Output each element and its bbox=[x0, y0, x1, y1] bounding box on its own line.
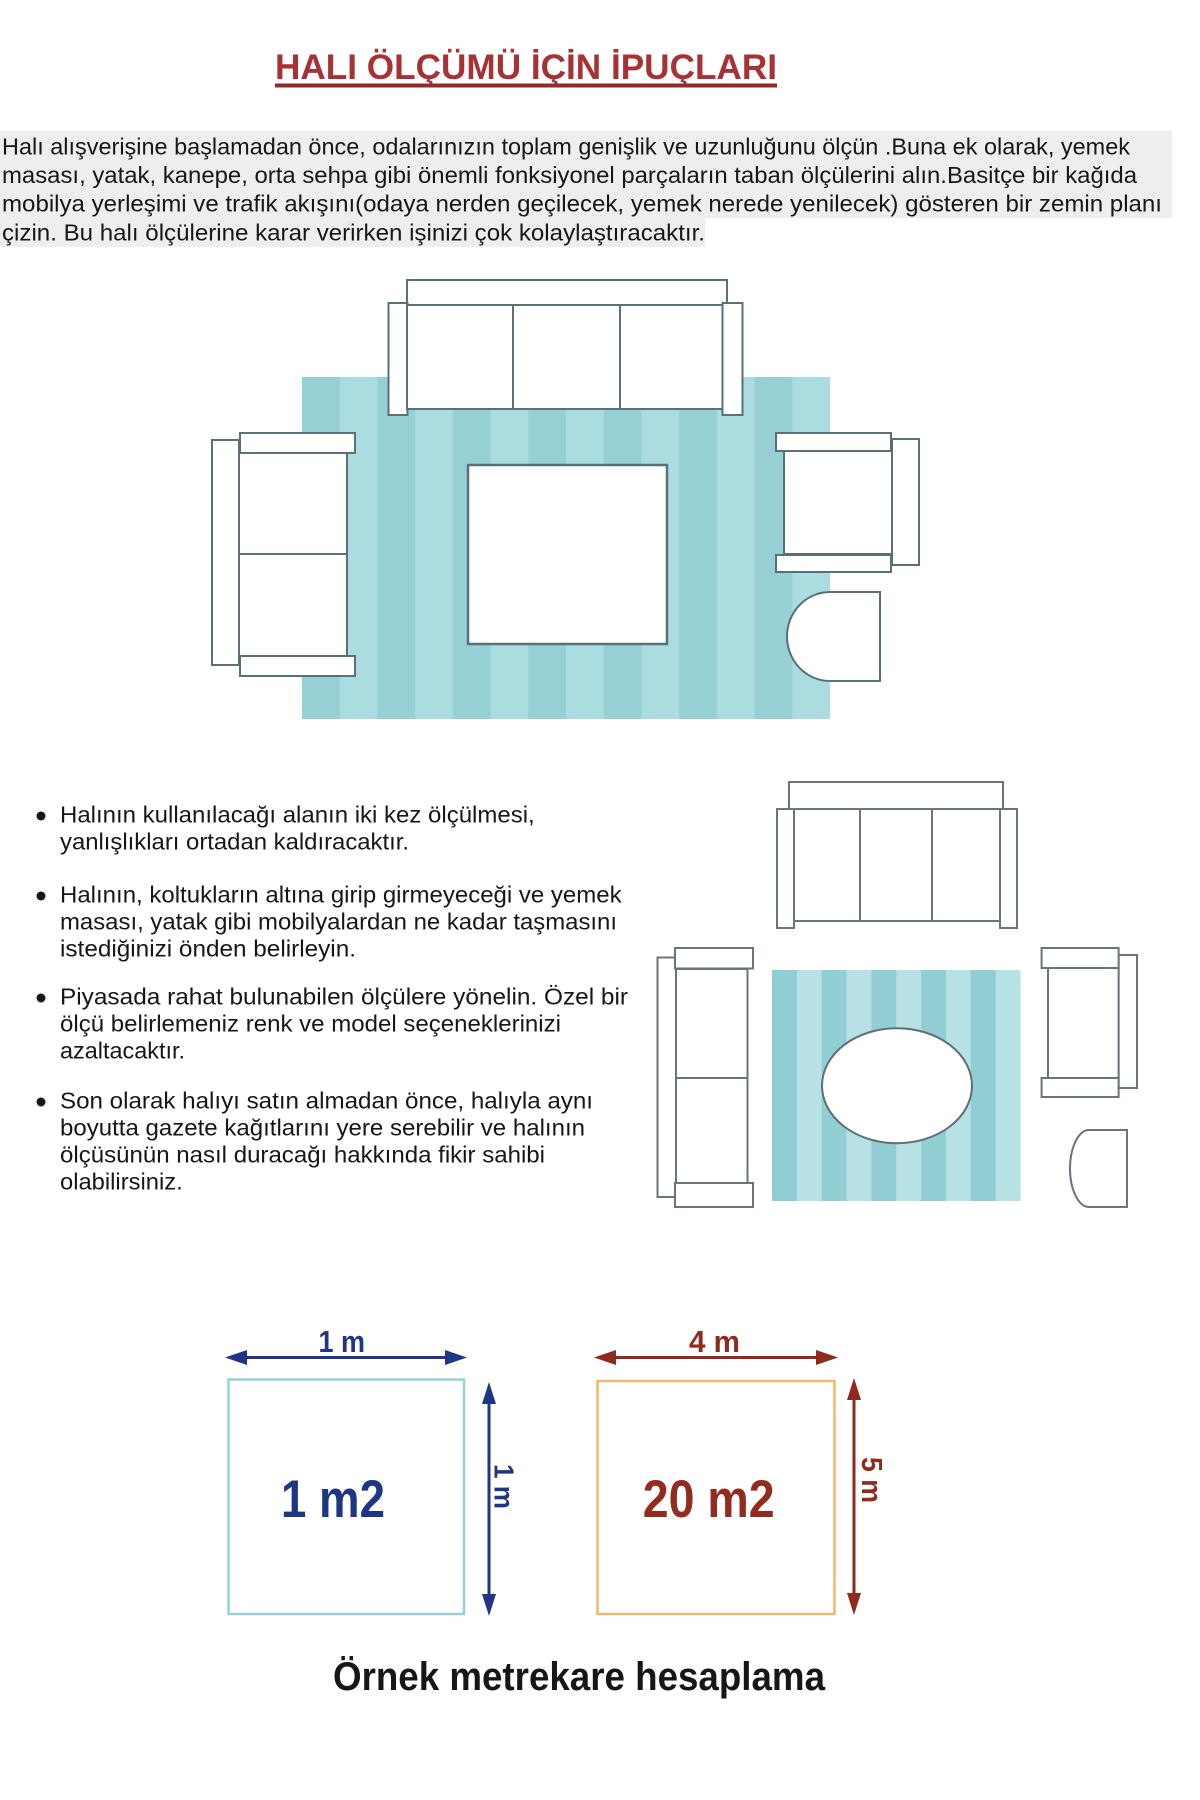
svg-text:Son olarak halıyı satın almada: Son olarak halıyı satın almadan önce, ha… bbox=[60, 1088, 593, 1114]
svg-text:20 m2: 20 m2 bbox=[643, 1470, 775, 1529]
svg-text:ölçü belirlemeniz renk ve mode: ölçü belirlemeniz renk ve model seçenekl… bbox=[60, 1011, 561, 1037]
svg-text:4 m: 4 m bbox=[689, 1324, 740, 1359]
svg-text:1 m2: 1 m2 bbox=[281, 1470, 385, 1529]
svg-text:çizin. Bu halı ölçülerine kara: çizin. Bu halı ölçülerine karar verirken… bbox=[2, 219, 705, 245]
svg-text:masası, yatak gibi mobilyalard: masası, yatak gibi mobilyalardan ne kada… bbox=[60, 909, 617, 935]
svg-text:5 m: 5 m bbox=[855, 1457, 887, 1503]
svg-text:Halının, koltukların altına gi: Halının, koltukların altına girip girmey… bbox=[60, 882, 622, 908]
svg-text:olabilirsiniz.: olabilirsiniz. bbox=[60, 1169, 183, 1195]
svg-text:istediğinizi önden belirleyin.: istediğinizi önden belirleyin. bbox=[60, 936, 356, 962]
svg-text:masası, yatak, kanepe, orta se: masası, yatak, kanepe, orta sehpa gibi ö… bbox=[2, 162, 1138, 188]
svg-text:azaltacaktır.: azaltacaktır. bbox=[60, 1038, 185, 1064]
svg-text:HALI ÖLÇÜMÜ İÇİN İPUÇLARI: HALI ÖLÇÜMÜ İÇİN İPUÇLARI bbox=[275, 48, 777, 87]
svg-text:mobilya yerleşimi ve trafik ak: mobilya yerleşimi ve trafik akışını(oday… bbox=[2, 191, 1162, 217]
svg-text:Halının kullanılacağı alanın i: Halının kullanılacağı alanın iki kez ölç… bbox=[60, 802, 535, 828]
svg-text:1 m: 1 m bbox=[319, 1324, 366, 1359]
svg-text:1 m: 1 m bbox=[488, 1464, 519, 1509]
svg-text:Halı alışverişine başlamadan ö: Halı alışverişine başlamadan önce, odala… bbox=[2, 134, 1130, 160]
svg-text:yanlışlıkları ortadan kaldırac: yanlışlıkları ortadan kaldıracaktır. bbox=[60, 829, 409, 855]
svg-text:boyutta gazete kağıtlarını yer: boyutta gazete kağıtlarını yere serebili… bbox=[60, 1115, 585, 1141]
svg-text:Örnek metrekare hesaplama: Örnek metrekare hesaplama bbox=[333, 1654, 826, 1699]
svg-text:Piyasada rahat bulunabilen ölç: Piyasada rahat bulunabilen ölçülere yöne… bbox=[60, 984, 628, 1010]
svg-text:ölçüsünün nasıl duracağı hakkı: ölçüsünün nasıl duracağı hakkında fikir … bbox=[60, 1142, 545, 1168]
